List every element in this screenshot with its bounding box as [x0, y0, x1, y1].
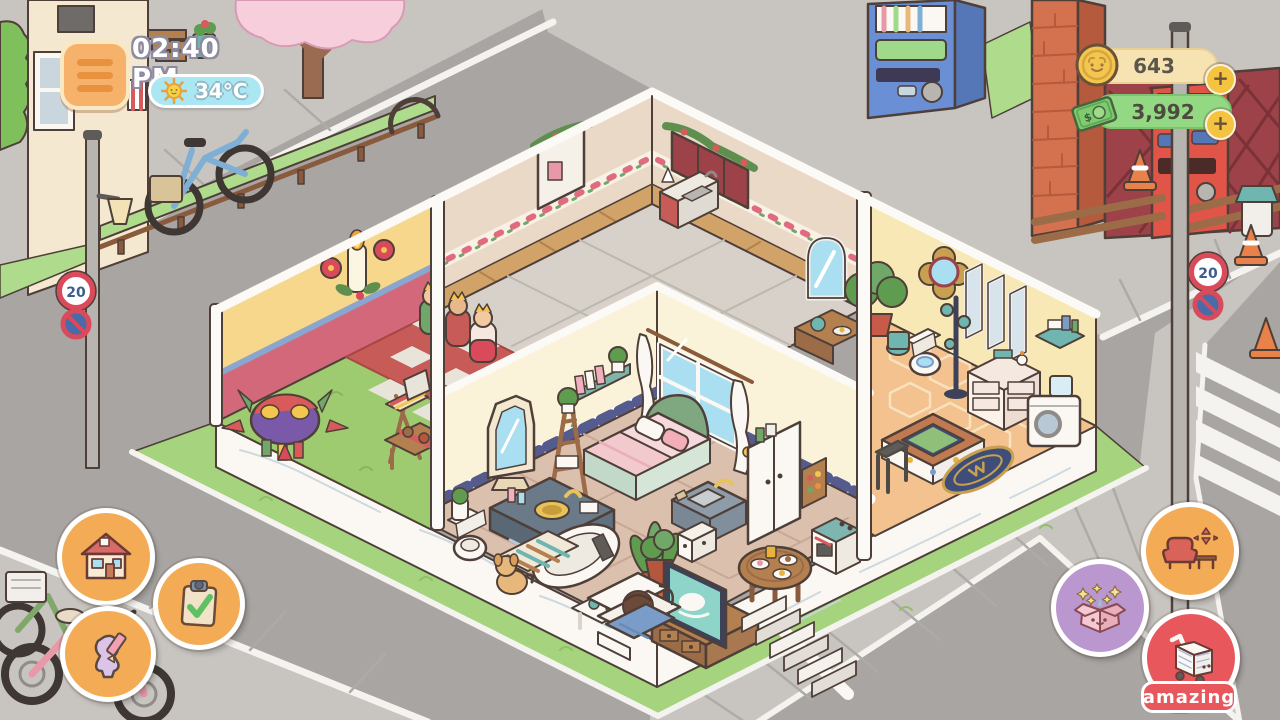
speed-limit-sign: 20 [1188, 252, 1228, 292]
cash-count: 3,992 [1131, 100, 1194, 124]
house-icon [80, 532, 132, 582]
person-pencil-icon [84, 629, 132, 679]
gift-box-icon [1073, 582, 1127, 634]
no-parking-sign [63, 311, 89, 337]
speed-limit-text: 20 [66, 285, 86, 301]
weather-widget: 34°C [148, 74, 264, 108]
speed-limit-text: 20 [1198, 266, 1218, 282]
cash-icon: $ [1068, 92, 1120, 134]
hedge [0, 21, 31, 150]
temperature-value: 34°C [195, 79, 248, 103]
move-arrows-icon [1194, 528, 1218, 544]
furniture-move-button[interactable] [1141, 502, 1239, 600]
hamburger-icon [77, 59, 113, 66]
speed-limit-sign: 20 [56, 271, 96, 311]
no-parking-sign [1195, 292, 1221, 318]
clipboard-check-icon [177, 579, 221, 629]
shopping-cart-icon [1164, 632, 1218, 684]
oven [812, 518, 860, 574]
stars [1077, 584, 1121, 605]
game-screen: 20 [0, 0, 1280, 720]
hamburger-icon [77, 85, 113, 92]
trash-bin [1236, 186, 1278, 236]
gifts-button[interactable] [1051, 559, 1149, 657]
round-table [739, 546, 811, 610]
coin-icon [1074, 42, 1120, 88]
home-button[interactable] [57, 508, 155, 606]
add-coins-button[interactable]: + [1205, 64, 1236, 95]
shop-badge: amazing [1141, 681, 1237, 713]
sofa-move-icon [1162, 526, 1218, 576]
hamburger-icon [77, 72, 113, 79]
tasks-button[interactable] [153, 558, 245, 650]
character-edit-button[interactable] [60, 606, 156, 702]
sun-icon [161, 78, 187, 104]
menu-button[interactable] [60, 40, 130, 110]
vending-machine-blue [868, 0, 985, 118]
coin-count: 643 [1133, 54, 1175, 78]
add-cash-button[interactable]: + [1205, 109, 1236, 140]
